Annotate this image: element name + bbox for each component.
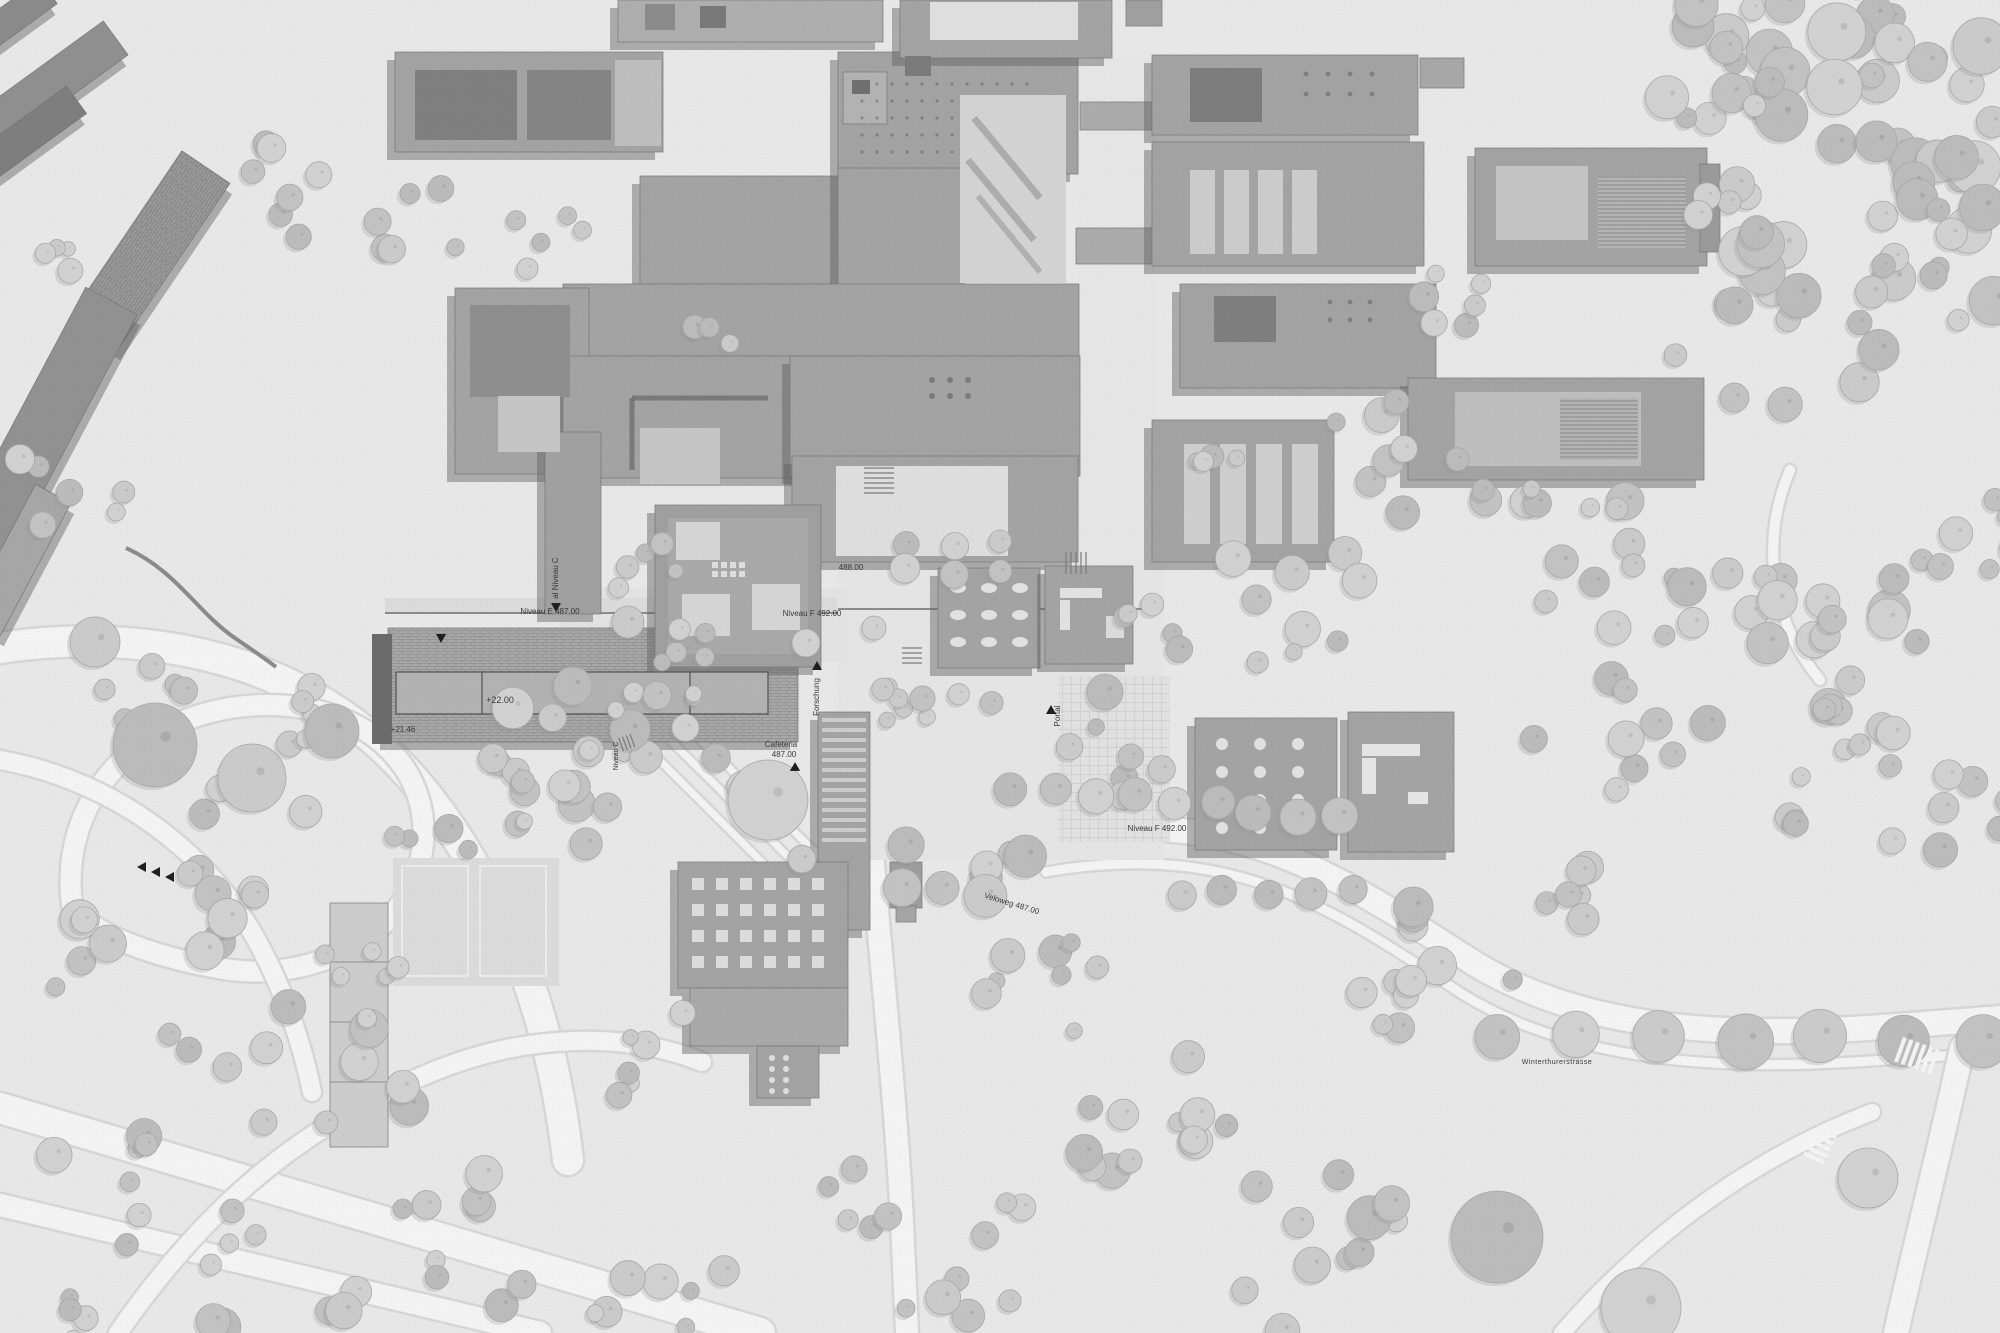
map-label: Portal [1053, 705, 1062, 726]
map-label: 487.00 [772, 750, 797, 759]
map-label: Forschung [812, 678, 821, 716]
site-plan-svg: al Niveau CNiveau E 487.00Niveau F 492.0… [0, 0, 2000, 1333]
map-label: +22.00 [486, 695, 514, 705]
map-label: Cafeteria [765, 740, 798, 749]
map-label: Niveau F 492.00 [1128, 824, 1187, 833]
map-label: Niveau F 492.00 [783, 609, 842, 618]
map-label: +21.46 [391, 725, 416, 734]
map-label: al Niveau C [551, 557, 560, 599]
texture-layer [0, 0, 2000, 1333]
grain-overlay [0, 0, 2000, 1333]
site-plan-canvas: Campus masterplan — grayscale aerial sit… [0, 0, 2000, 1333]
map-label: Winterthurerstrasse [1522, 1059, 1593, 1066]
map-label: 488.00 [839, 563, 864, 572]
map-label: Niveau C [613, 742, 620, 771]
map-label: Niveau E 487.00 [520, 607, 580, 616]
